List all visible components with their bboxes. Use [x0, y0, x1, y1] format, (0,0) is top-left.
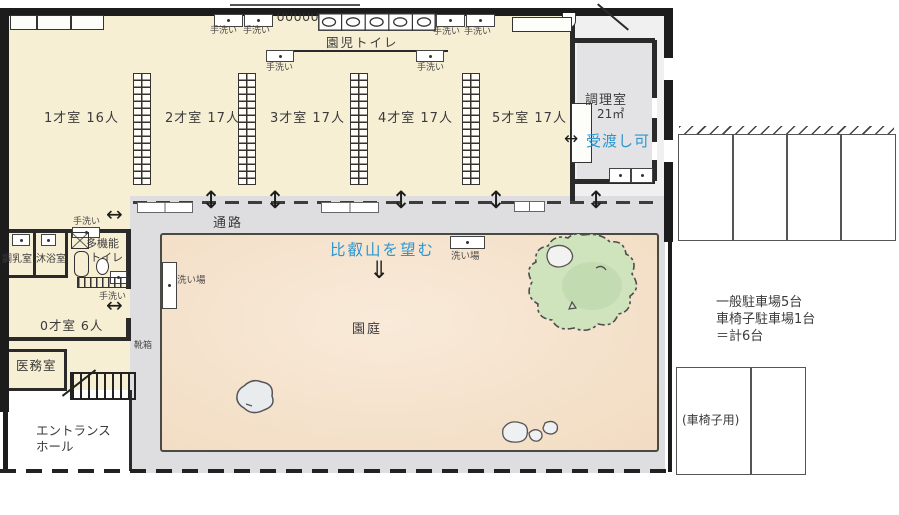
room-label-age5: 5才室 17人	[492, 107, 567, 126]
hand-wash-label: 手洗い	[433, 24, 460, 37]
bath-room-label: 沐浴室	[36, 250, 66, 265]
room-label-age2: 2才室 17人	[165, 107, 240, 126]
wall-left	[0, 8, 9, 412]
wall-medical-top	[9, 349, 67, 352]
parking-divider	[750, 368, 752, 474]
rock-icon	[232, 378, 282, 420]
cabinet	[71, 15, 104, 30]
hand-wash-label: 手洗い	[99, 289, 126, 302]
parking-divider	[732, 135, 734, 240]
hand-wash-label: 手洗い	[417, 60, 444, 73]
multi-toilet-label-line2: トイレ	[90, 249, 123, 265]
wall-right-lower	[668, 242, 672, 472]
hand-wash-label: 手洗い	[210, 23, 237, 36]
yard-label: 園庭	[352, 318, 382, 337]
cabinet	[10, 15, 37, 30]
wall-leftblock-bottom	[9, 337, 131, 341]
shelf-divider	[133, 73, 151, 185]
wall-kitchen-top	[575, 38, 655, 43]
cabinet	[37, 15, 71, 30]
dimension-line	[230, 4, 360, 6]
shelf-divider	[462, 73, 480, 185]
wall-medical-right	[64, 349, 67, 391]
sliding-door-3	[514, 201, 545, 212]
room-label-age3: 3才室 17人	[270, 107, 345, 126]
cabinet	[512, 17, 572, 32]
handover-arrow-icon: ↔	[564, 131, 578, 148]
shelf-divider	[350, 73, 368, 185]
door-arrow-icon: ↕	[391, 188, 411, 212]
corridor-label: 通路	[213, 212, 243, 231]
door-arrow-icon: ↕	[201, 188, 221, 212]
door-kitchen-right-1	[652, 98, 657, 118]
wheelchair-stall-label: (車椅子用)	[682, 411, 739, 428]
parking-divider	[786, 135, 788, 240]
door-arrow-icon: ↕	[265, 188, 285, 212]
wash-station-label: 洗い場	[177, 272, 206, 286]
sliding-door-1	[137, 202, 193, 213]
room-label-age0: 0才室 6人	[40, 315, 103, 334]
wall-right	[664, 8, 673, 242]
kitchen-area-label: 21㎡	[597, 105, 624, 122]
hand-wash-label: 手洗い	[73, 214, 100, 227]
door-arrow-icon: ↕	[586, 188, 606, 212]
floor-plan: ↕ ↕ ↕ ↕ ↕ ↔ ↔ 手洗い 手洗い 手洗い 手洗い ∪∪∪∪∪ 園児トイ…	[0, 0, 899, 515]
room-label-age4: 4才室 17人	[378, 107, 453, 126]
milk-room-sink	[12, 234, 30, 246]
door-kitchen-right-2	[652, 142, 657, 160]
rocks-cluster-icon	[495, 415, 567, 447]
wall-left-lower	[3, 412, 8, 471]
wall-medical-bottom	[9, 388, 67, 391]
urinal-row-icon: ∪∪∪∪∪	[276, 10, 319, 25]
kitchen-counter-2	[631, 168, 653, 183]
hand-wash-label: 手洗い	[464, 24, 491, 37]
entrance-label-line2: ホール	[36, 436, 74, 455]
parking-text-line3: ＝計6台	[716, 325, 763, 344]
hand-wash-label: 手洗い	[266, 60, 293, 73]
milk-room-label: 調乳室	[2, 250, 32, 265]
door-right-1	[664, 58, 673, 80]
bath-room-sink	[41, 234, 56, 246]
wash-station-label: 洗い場	[451, 248, 480, 262]
toilet-stalls-icon	[318, 13, 436, 31]
parking-hatch	[679, 126, 894, 134]
door-right-2	[664, 140, 673, 162]
parking-divider	[840, 135, 842, 240]
view-down-arrow-icon: ⇓	[369, 258, 389, 282]
wall-bottom-dashed	[0, 469, 672, 473]
handover-label: 受渡し可	[586, 130, 650, 151]
room-label-age1: 1才室 16人	[44, 107, 119, 126]
wall-smallrooms-bottom	[9, 275, 68, 278]
shoe-box-label: 靴箱	[134, 338, 152, 351]
kitchen-counter-1	[609, 168, 631, 183]
shelf-divider	[238, 73, 256, 185]
floor-grate-icon	[77, 277, 129, 288]
wall-entrance-right	[129, 390, 132, 471]
stairs	[70, 372, 136, 400]
tree-icon	[520, 230, 645, 338]
wash-station-left	[162, 262, 177, 309]
wall-leftblock-top	[9, 229, 130, 233]
bathtub-icon	[74, 251, 89, 277]
door-arrow-icon: ↔	[106, 204, 123, 224]
sliding-door-2	[321, 202, 379, 213]
medical-room-label: 医務室	[16, 355, 57, 374]
door-arrow-icon: ↕	[486, 188, 506, 212]
parking-lot-general	[678, 134, 896, 241]
kids-toilet-label: 園児トイレ	[326, 32, 399, 51]
hand-wash-label: 手洗い	[243, 23, 270, 36]
